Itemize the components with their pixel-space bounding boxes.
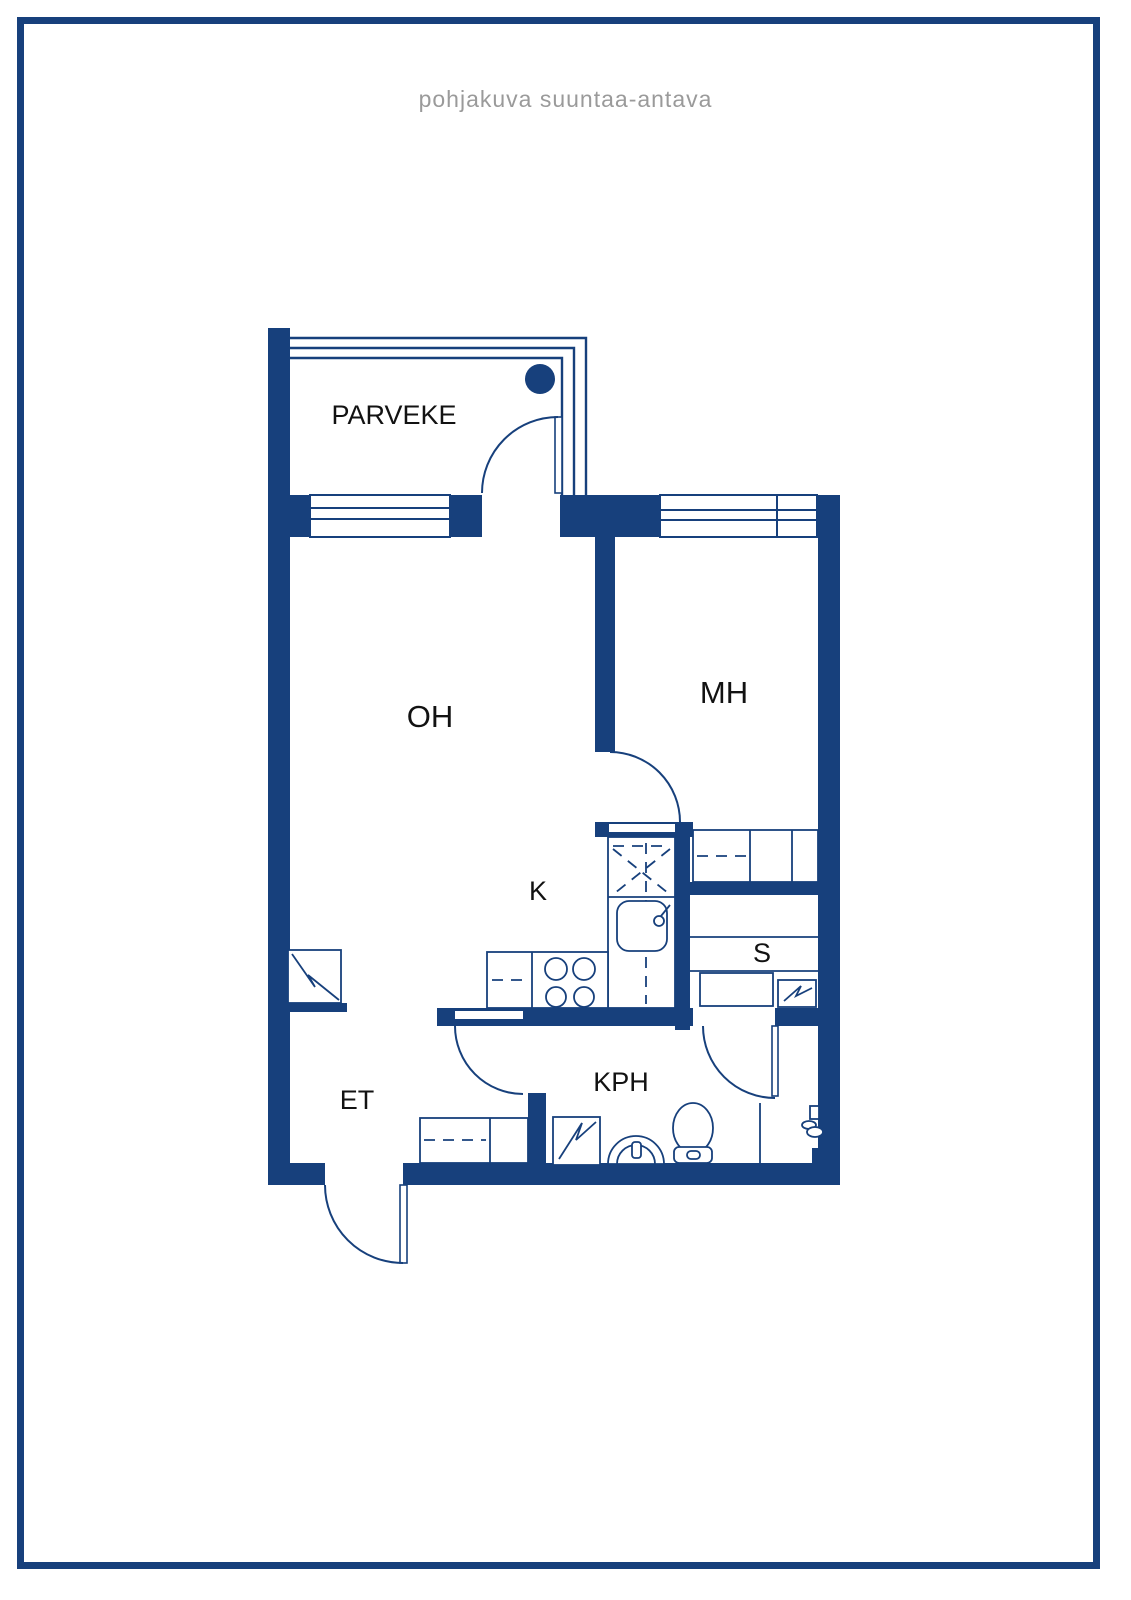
room-label-s: S bbox=[753, 938, 771, 968]
room-label-oh: OH bbox=[407, 699, 454, 734]
bedroom-wardrobes bbox=[693, 830, 818, 882]
bathroom-sink-icon bbox=[608, 1136, 664, 1164]
balcony-column-dot bbox=[525, 364, 555, 394]
electrical-panel-icon bbox=[288, 950, 341, 1003]
kph-door-leaf-slot bbox=[455, 1011, 523, 1019]
left-wall bbox=[268, 495, 290, 1185]
room-label-mh: MH bbox=[700, 675, 748, 710]
kitchen-fixtures bbox=[487, 837, 675, 1008]
balcony-door-arc bbox=[482, 417, 558, 493]
floor-plan: PARVEKE OH MH K S ET KPH bbox=[0, 0, 1131, 1600]
room-label-k: K bbox=[529, 876, 547, 906]
living-room-window bbox=[310, 495, 450, 537]
entrance-door-leaf bbox=[400, 1185, 407, 1263]
room-label-parveke: PARVEKE bbox=[331, 400, 456, 430]
bedroom-door-arc bbox=[610, 752, 680, 822]
bottom-right-wall-step bbox=[812, 1148, 840, 1185]
balcony-left-wall bbox=[268, 328, 290, 500]
panel-wall-stub bbox=[287, 1003, 347, 1012]
bottom-wall-segment bbox=[403, 1163, 840, 1185]
balcony-door-leaf bbox=[555, 417, 562, 493]
toilet-icon bbox=[673, 1103, 713, 1163]
sauna-top-wall bbox=[675, 882, 818, 895]
kitchen-sink-icon bbox=[617, 901, 670, 951]
sauna-door-leaf bbox=[772, 1026, 778, 1096]
right-wall bbox=[818, 495, 840, 1185]
entrance-door-arc bbox=[325, 1185, 403, 1263]
sauna-heater-icon bbox=[778, 980, 816, 1007]
kitchen-sauna-wall bbox=[675, 837, 690, 1030]
room-label-kph: KPH bbox=[593, 1067, 649, 1097]
washing-machine-icon bbox=[553, 1117, 600, 1165]
top-wall-segment bbox=[560, 495, 660, 537]
bottom-wall-segment bbox=[268, 1163, 325, 1185]
top-wall-segment bbox=[450, 495, 482, 537]
bathroom-door-arc bbox=[455, 1026, 523, 1094]
sauna-door-arc bbox=[703, 1026, 775, 1098]
room-label-et: ET bbox=[340, 1085, 375, 1115]
mh-door-leaf-slot bbox=[609, 824, 675, 832]
sauna-bottom-wall bbox=[775, 1008, 818, 1026]
bedroom-window bbox=[660, 495, 817, 537]
et-kph-wall bbox=[528, 1093, 546, 1163]
oh-mh-partition-wall bbox=[595, 537, 615, 752]
sauna-lower-bench bbox=[700, 973, 773, 1006]
hall-wardrobe bbox=[420, 1118, 528, 1163]
top-wall-segment bbox=[268, 495, 310, 537]
bathroom-fixtures bbox=[553, 1103, 823, 1165]
top-wall-segment bbox=[817, 495, 840, 537]
